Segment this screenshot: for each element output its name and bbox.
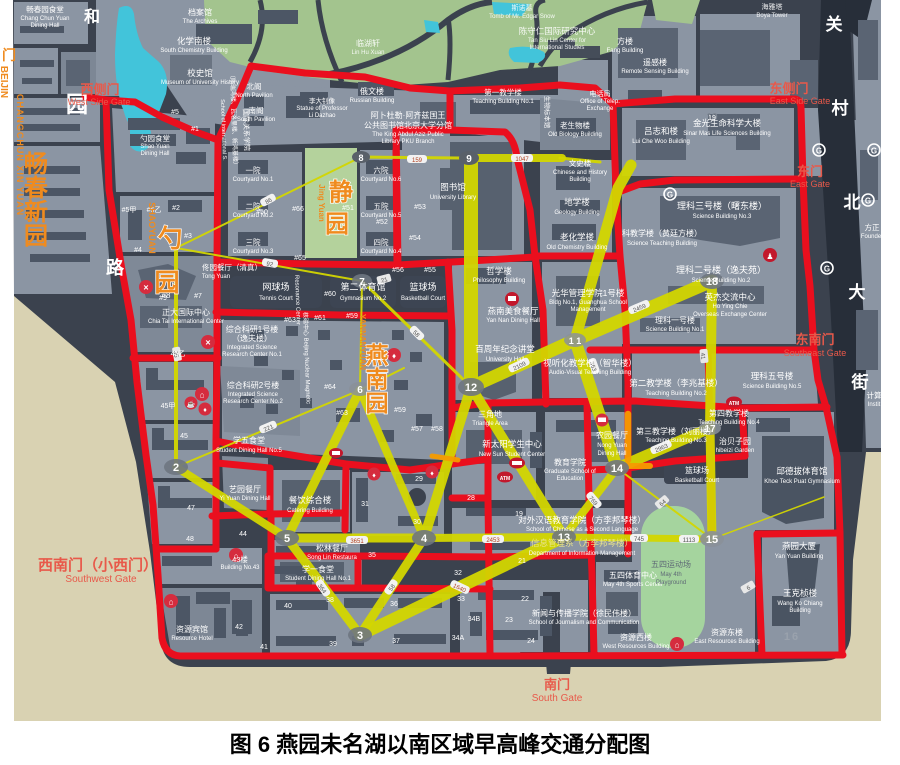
svg-text:综合科研2号楼: 综合科研2号楼 <box>227 380 279 390</box>
svg-text:Old Chemistry Building: Old Chemistry Building <box>546 245 607 251</box>
svg-text:Nong Yuan: Nong Yuan <box>597 443 627 449</box>
svg-text:南门: 南门 <box>544 677 570 692</box>
svg-text:勺: 勺 <box>157 225 182 253</box>
svg-text:教育学院: 教育学院 <box>554 457 586 467</box>
svg-text:44: 44 <box>239 531 247 538</box>
svg-text:16: 16 <box>784 631 800 643</box>
svg-text:Boya Tower: Boya Tower <box>756 13 787 19</box>
svg-text:South Chemistry Building: South Chemistry Building <box>160 48 227 54</box>
svg-text:Jing Yuan: Jing Yuan <box>317 184 326 222</box>
svg-text:hibeizi Garden: hibeizi Garden <box>716 448 755 454</box>
svg-text:Research Center No.1: Research Center No.1 <box>222 352 282 358</box>
svg-text:Dining Hall: Dining Hall <box>597 451 626 457</box>
svg-text:Sinar Mas Life Sciences Buildi: Sinar Mas Life Sciences Building <box>683 131 770 137</box>
svg-text:36: 36 <box>390 601 398 608</box>
svg-text:♦: ♦ <box>372 473 376 480</box>
svg-text:斯诺墓: 斯诺墓 <box>512 3 533 12</box>
svg-text:⌂: ⌂ <box>675 641 680 650</box>
svg-text:School of Chinese as a Second: School of Chinese as a Second Language <box>526 527 639 533</box>
svg-text:北: 北 <box>844 193 861 212</box>
svg-text:Remote Sensing Building: Remote Sensing Building <box>621 69 688 75</box>
svg-text:21: 21 <box>518 558 526 565</box>
svg-text:地学楼: 地学楼 <box>564 197 590 207</box>
svg-text:哲学楼: 哲学楼 <box>486 266 512 276</box>
svg-text:#63: #63 <box>336 410 348 417</box>
svg-text:松林餐厅: 松林餐厅 <box>316 543 348 553</box>
svg-text:海雅塔: 海雅塔 <box>762 2 783 11</box>
svg-text:燕园大厦: 燕园大厦 <box>782 541 817 551</box>
svg-text:West Resources Building: West Resources Building <box>603 644 670 650</box>
svg-text:23: 23 <box>505 617 513 624</box>
svg-text:王克桢楼: 王克桢楼 <box>783 588 818 598</box>
svg-text:农园餐厅: 农园餐厅 <box>596 430 628 440</box>
svg-text:Library PKU Branch: Library PKU Branch <box>381 139 434 145</box>
svg-text:园: 园 <box>154 269 179 297</box>
svg-text:45乙: 45乙 <box>171 350 186 358</box>
svg-text:第二教学楼（李兆基楼）: 第二教学楼（李兆基楼） <box>629 378 723 388</box>
svg-text:电话局: 电话局 <box>590 89 611 98</box>
svg-text:#56: #56 <box>392 267 404 274</box>
svg-text:ATM: ATM <box>500 476 510 482</box>
svg-text:24: 24 <box>527 638 535 645</box>
svg-text:理科五号楼: 理科五号楼 <box>751 371 794 381</box>
svg-text:园: 园 <box>24 223 48 250</box>
svg-text:#66: #66 <box>292 206 304 213</box>
svg-text:篮球场: 篮球场 <box>409 281 436 292</box>
svg-text:#59: #59 <box>394 407 406 414</box>
svg-text:英杰交流中心: 英杰交流中心 <box>704 292 756 302</box>
svg-text:The Archives: The Archives <box>183 19 218 25</box>
svg-text:37: 37 <box>392 638 400 645</box>
svg-text:Yan Nan Dining Hall: Yan Nan Dining Hall <box>486 318 540 324</box>
svg-text:#55: #55 <box>424 267 436 274</box>
svg-text:#61: #61 <box>314 315 326 322</box>
svg-text:陈守仁国际研究中心: 陈守仁国际研究中心 <box>519 26 596 36</box>
svg-text:159: 159 <box>412 158 423 164</box>
svg-text:G: G <box>865 197 871 206</box>
svg-text:5: 5 <box>284 533 290 545</box>
svg-text:19: 19 <box>515 511 523 518</box>
svg-text:New Sun Student Center: New Sun Student Center <box>479 452 545 458</box>
svg-text:May 4th Sports Center: May 4th Sports Center <box>603 582 663 588</box>
svg-text:东门: 东门 <box>797 164 823 179</box>
svg-text:老生物楼: 老生物楼 <box>560 120 590 130</box>
svg-text:南阁: 南阁 <box>249 105 264 115</box>
svg-text:#1: #1 <box>191 126 199 133</box>
svg-text:阿卜杜勒·阿齐兹国王: 阿卜杜勒·阿齐兹国王 <box>371 110 446 120</box>
svg-text:Museum of University History: Museum of University History <box>161 80 239 86</box>
svg-text:Teaching Building No.4: Teaching Building No.4 <box>698 420 760 426</box>
svg-text:科教学楼（黄廷方楼）: 科教学楼（黄廷方楼） <box>622 228 702 238</box>
svg-text:48: 48 <box>186 536 194 543</box>
svg-text:Basketball Court: Basketball Court <box>675 478 719 484</box>
svg-text:BEIJIN: BEIJIN <box>0 66 9 98</box>
svg-text:Tomb of Mr. Edgar Snow: Tomb of Mr. Edgar Snow <box>489 14 555 20</box>
svg-text:李大钊像: 李大钊像 <box>309 96 336 105</box>
svg-text:1113: 1113 <box>683 538 696 544</box>
svg-text:#5甲: #5甲 <box>122 206 137 214</box>
svg-text:街: 街 <box>851 372 869 392</box>
svg-text:东南门: 东南门 <box>795 332 834 347</box>
svg-text:Graduate School of: Graduate School of <box>544 469 596 475</box>
svg-text:East Resources Building: East Resources Building <box>694 639 759 645</box>
svg-text:22: 22 <box>521 596 529 603</box>
svg-text:⌂: ⌂ <box>200 391 205 400</box>
svg-text:餐饮综合楼: 餐饮综合楼 <box>289 495 332 505</box>
svg-text:Southeast Gate: Southeast Gate <box>784 348 847 358</box>
svg-text:29: 29 <box>415 476 423 483</box>
svg-text:Chia Tai International Center: Chia Tai International Center <box>148 319 224 325</box>
svg-text:正大国际中心: 正大国际中心 <box>162 307 210 317</box>
svg-text:生物标本馆: 生物标本馆 <box>543 96 552 129</box>
svg-text:综合科研1号楼: 综合科研1号楼 <box>226 324 278 334</box>
svg-text:University Library: University Library <box>430 195 476 201</box>
svg-text:Student Dining Hall No.1: Student Dining Hall No.1 <box>285 576 351 582</box>
svg-text:新闻与传播学院（徐民伟楼）: 新闻与传播学院（徐民伟楼） <box>532 608 636 618</box>
svg-text:方正: 方正 <box>865 222 880 232</box>
svg-text:Instit: Instit <box>868 402 881 408</box>
svg-text:ATM: ATM <box>729 401 739 407</box>
svg-text:28: 28 <box>467 495 475 502</box>
svg-text:Gymnasium No.2: Gymnasium No.2 <box>340 296 387 302</box>
svg-text:#54: #54 <box>409 235 421 242</box>
svg-text:艺园餐厅: 艺园餐厅 <box>229 485 261 494</box>
svg-text:畅春园食堂: 畅春园食堂 <box>26 4 64 14</box>
svg-text:金光生命科学大楼: 金光生命科学大楼 <box>693 118 762 128</box>
svg-text:勺园食堂: 勺园食堂 <box>140 133 170 143</box>
svg-text:Teaching Building No.1: Teaching Building No.1 <box>472 99 534 105</box>
svg-text:#50: #50 <box>256 209 268 216</box>
svg-text:G: G <box>816 147 822 156</box>
svg-text:Li Dazhao: Li Dazhao <box>308 113 336 119</box>
svg-text:Catering Building: Catering Building <box>287 508 333 514</box>
svg-text:CHANGCHUN XIN YUAN: CHANGCHUN XIN YUAN <box>15 94 25 216</box>
svg-text:#52: #52 <box>376 219 388 226</box>
svg-text:Courtyard No.6: Courtyard No.6 <box>361 177 402 183</box>
svg-text:1 1: 1 1 <box>569 336 582 346</box>
svg-text:Teaching Building No.3: Teaching Building No.3 <box>645 438 707 444</box>
svg-text:Fang Building: Fang Building <box>607 48 644 54</box>
svg-text:4: 4 <box>421 533 428 545</box>
svg-text:745: 745 <box>634 537 645 543</box>
svg-text:39: 39 <box>329 641 337 648</box>
svg-text:燕南美食餐厅: 燕南美食餐厅 <box>487 306 539 316</box>
svg-text:Audio-Visual Teaching Building: Audio-Visual Teaching Building <box>549 370 631 376</box>
svg-text:#7: #7 <box>194 293 202 300</box>
svg-text:Building No.43: Building No.43 <box>220 565 260 571</box>
svg-text:Courtyard No.4: Courtyard No.4 <box>361 249 402 255</box>
svg-text:三院: 三院 <box>246 237 261 247</box>
svg-text:Dining Hall: Dining Hall <box>140 151 169 157</box>
svg-text:#58: #58 <box>431 426 443 433</box>
svg-text:化学南楼: 化学南楼 <box>177 36 212 46</box>
svg-text:关: 关 <box>826 14 843 34</box>
svg-text:Management: Management <box>570 307 605 313</box>
svg-text:×: × <box>205 338 210 348</box>
svg-text:Resource Hotel: Resource Hotel <box>171 636 212 642</box>
svg-text:大: 大 <box>849 282 866 302</box>
svg-text:计算: 计算 <box>867 390 882 400</box>
svg-text:Education: Education <box>557 476 584 482</box>
svg-text:YANNANYUAN: YANNANYUAN <box>358 314 367 370</box>
svg-text:#65: #65 <box>294 255 306 262</box>
svg-text:Khoe Teck Puat Gymnasium: Khoe Teck Puat Gymnasium <box>764 479 840 485</box>
svg-text:方楼: 方楼 <box>617 36 633 46</box>
svg-text:Shao Yuan: Shao Yuan <box>140 144 169 150</box>
svg-text:Lin Hu Xuan: Lin Hu Xuan <box>351 50 384 56</box>
svg-text:#5: #5 <box>171 109 179 116</box>
svg-text:8: 8 <box>358 153 363 163</box>
svg-text:北阁: 北阁 <box>247 81 262 91</box>
svg-text:第四教学楼: 第四教学楼 <box>709 408 749 418</box>
svg-text:♟: ♟ <box>766 252 773 261</box>
svg-text:University Hall: University Hall <box>486 357 524 363</box>
svg-text:邱德拔体育馆: 邱德拔体育馆 <box>776 466 827 476</box>
svg-text:45甲: 45甲 <box>161 402 176 410</box>
svg-text:#63: #63 <box>284 317 296 324</box>
svg-text:和: 和 <box>84 7 100 26</box>
svg-text:（逸夫楼）: （逸夫楼） <box>232 333 272 343</box>
svg-text:North Pavilion: North Pavilion <box>235 93 272 99</box>
svg-text:Statue of Professor: Statue of Professor <box>296 106 347 112</box>
svg-text:1047: 1047 <box>515 157 529 163</box>
svg-text:⌂: ⌂ <box>169 598 174 607</box>
svg-text:♦: ♦ <box>203 407 207 414</box>
svg-text:新太阳学生中心: 新太阳学生中心 <box>482 439 542 449</box>
svg-text:Department of Information Mana: Department of Information Management <box>529 551 636 557</box>
svg-text:俄文楼: 俄文楼 <box>360 86 384 96</box>
svg-text:静: 静 <box>329 179 353 206</box>
svg-text:#57: #57 <box>411 426 423 433</box>
svg-text:☕: ☕ <box>187 400 196 409</box>
svg-text:#64: #64 <box>324 384 336 391</box>
svg-text:Courtyard No.3: Courtyard No.3 <box>233 249 274 255</box>
svg-text:Russian Building: Russian Building <box>350 98 395 104</box>
svg-text:Building: Building <box>789 608 810 614</box>
svg-text:#53: #53 <box>414 204 426 211</box>
svg-text:Science Building No.1: Science Building No.1 <box>646 327 705 333</box>
svg-text:♦: ♦ <box>392 352 396 361</box>
svg-text:May 4th: May 4th <box>660 572 681 578</box>
svg-text:40: 40 <box>284 603 292 610</box>
svg-text:6: 6 <box>357 385 363 396</box>
svg-text:The King Abdul Aziz Public: The King Abdul Aziz Public <box>372 132 443 138</box>
svg-text:第二体育馆: 第二体育馆 <box>340 281 385 292</box>
svg-text:治贝子园: 治贝子园 <box>719 436 751 446</box>
svg-text:视听化教学楼（智华楼）: 视听化教学楼（智华楼） <box>543 358 637 368</box>
svg-text:43楼: 43楼 <box>232 554 248 564</box>
svg-text:G: G <box>824 265 830 274</box>
svg-text:Overseas Exchange Center: Overseas Exchange Center <box>693 312 767 318</box>
svg-text:Student Dining Hall No.5: Student Dining Hall No.5 <box>216 448 282 454</box>
svg-text:Integrated Science: Integrated Science <box>227 345 278 351</box>
svg-text:Dining Hall: Dining Hall <box>30 23 59 29</box>
svg-text:Science Building No.3: Science Building No.3 <box>693 214 752 220</box>
svg-text:第三教学楼（刘丽楼）: 第三教学楼（刘丽楼） <box>636 426 716 436</box>
svg-text:信息管理系（方李邦琴楼）: 信息管理系（方李邦琴楼） <box>531 538 633 548</box>
svg-text:41: 41 <box>260 644 268 651</box>
svg-text:SHAOYUAN: SHAOYUAN <box>147 202 157 254</box>
svg-text:Chinese and History: Chinese and History <box>553 170 607 176</box>
svg-text:Geology Building: Geology Building <box>554 210 599 216</box>
svg-text:Ho Ying Chie: Ho Ying Chie <box>712 304 748 310</box>
svg-text:春: 春 <box>24 175 48 202</box>
svg-text:Teaching Building No.2: Teaching Building No.2 <box>645 391 707 397</box>
svg-text:School of Journalism and Commu: School of Journalism and Communication <box>529 620 640 626</box>
svg-text:Science Teaching Building: Science Teaching Building <box>627 241 697 247</box>
svg-text:#3: #3 <box>184 233 192 240</box>
svg-text:East Side Gate: East Side Gate <box>770 96 831 106</box>
svg-text:Lui Che Woo Building: Lui Che Woo Building <box>632 139 690 145</box>
svg-text:31: 31 <box>361 501 369 508</box>
svg-text:West Side Gate: West Side Gate <box>68 97 131 107</box>
svg-text:#4: #4 <box>134 247 142 254</box>
svg-text:第一教学楼: 第一教学楼 <box>484 87 522 97</box>
svg-text:百周年纪念讲堂: 百周年纪念讲堂 <box>475 344 535 354</box>
svg-text:西南门（小西门）: 西南门（小西门） <box>38 556 158 574</box>
svg-text:Building: Building <box>569 177 590 183</box>
svg-text:Tennis Court: Tennis Court <box>259 296 293 302</box>
svg-text:Southwest Gate: Southwest Gate <box>65 574 137 585</box>
svg-text:路: 路 <box>106 257 125 278</box>
svg-text:学五食堂: 学五食堂 <box>233 435 265 445</box>
svg-text:图 6 燕园未名湖以南区域早高峰交通分配图: 图 6 燕园未名湖以南区域早高峰交通分配图 <box>230 732 650 757</box>
svg-text:47: 47 <box>187 505 195 512</box>
svg-text:Song Lin Restaura: Song Lin Restaura <box>307 555 357 561</box>
svg-text:Tong Yuan: Tong Yuan <box>202 274 230 280</box>
svg-text:新: 新 <box>24 198 48 226</box>
svg-text:Playground: Playground <box>656 580 686 586</box>
svg-text:Office of Telep.: Office of Telep. <box>580 99 620 105</box>
svg-text:International Studies: International Studies <box>530 45 585 51</box>
svg-text:园: 园 <box>366 390 389 416</box>
svg-text:45: 45 <box>180 433 188 440</box>
svg-text:档案馆: 档案馆 <box>188 7 212 17</box>
svg-text:30: 30 <box>413 519 421 526</box>
svg-text:Basketball Court: Basketball Court <box>401 296 445 302</box>
svg-text:Courtyard No.1: Courtyard No.1 <box>233 177 274 183</box>
svg-text:吕志和楼: 吕志和楼 <box>644 126 679 136</box>
svg-text:Bldg No.1, Guanghua School: Bldg No.1, Guanghua School <box>549 300 627 306</box>
svg-text:Research Center No.2: Research Center No.2 <box>223 399 283 405</box>
svg-text:Yan Yuan Building: Yan Yuan Building <box>775 554 824 560</box>
svg-text:15: 15 <box>706 534 718 546</box>
svg-text:校史馆: 校史馆 <box>187 68 213 78</box>
svg-text:Founder: Founder <box>861 234 883 240</box>
svg-text:Exchange: Exchange <box>587 106 614 112</box>
svg-text:19: 19 <box>708 115 716 122</box>
svg-text:Science Building No.5: Science Building No.5 <box>743 384 802 390</box>
svg-text:3: 3 <box>357 630 363 642</box>
svg-text:Old Biology Building: Old Biology Building <box>548 132 602 138</box>
svg-text:对外汉语教育学院（方李邦琴楼）: 对外汉语教育学院（方李邦琴楼） <box>518 515 646 525</box>
svg-text:14: 14 <box>611 463 624 475</box>
svg-text:理科三号楼（曙东楼）: 理科三号楼（曙东楼） <box>677 200 767 211</box>
svg-text:东侧门: 东侧门 <box>769 81 808 96</box>
svg-text:三角地: 三角地 <box>478 409 502 419</box>
svg-text:资源东楼: 资源东楼 <box>711 627 743 637</box>
svg-text:理科二号楼（逸夫苑）: 理科二号楼（逸夫苑） <box>676 264 766 275</box>
svg-text:3651: 3651 <box>350 539 364 545</box>
svg-text:篮球场: 篮球场 <box>685 465 709 475</box>
svg-text:#59: #59 <box>346 313 358 320</box>
svg-text:五四运动场: 五四运动场 <box>651 559 691 569</box>
svg-text:佟园餐厅（清真）: 佟园餐厅（清真） <box>202 262 262 272</box>
svg-text:园: 园 <box>325 211 349 238</box>
svg-text:G: G <box>667 191 673 200</box>
svg-text:9: 9 <box>466 154 472 165</box>
svg-text:33: 33 <box>457 596 465 603</box>
svg-text:×: × <box>143 283 148 293</box>
svg-text:临湖轩: 临湖轩 <box>356 38 380 48</box>
svg-text:门: 门 <box>2 47 16 63</box>
svg-text:32: 32 <box>454 570 462 577</box>
svg-text:Yi Yuan Dining Hall: Yi Yuan Dining Hall <box>219 496 270 502</box>
svg-text:G: G <box>871 147 877 156</box>
svg-text:East Gate: East Gate <box>790 179 830 189</box>
svg-text:42: 42 <box>235 624 243 631</box>
svg-text:学一食堂: 学一食堂 <box>302 564 334 574</box>
svg-text:南: 南 <box>366 366 389 392</box>
svg-text:34A: 34A <box>452 635 465 642</box>
svg-text:35: 35 <box>368 552 376 559</box>
svg-text:一院: 一院 <box>246 165 261 175</box>
svg-text:Chang Chun Yuan: Chang Chun Yuan <box>21 16 70 22</box>
svg-text:#60: #60 <box>324 291 336 298</box>
svg-text:光华管理学院1号楼: 光华管理学院1号楼 <box>552 288 625 298</box>
svg-text:遥感楼: 遥感楼 <box>643 57 667 67</box>
svg-text:12: 12 <box>465 382 477 394</box>
svg-text:文史楼: 文史楼 <box>569 158 592 168</box>
svg-text:图书馆: 图书馆 <box>440 182 466 192</box>
svg-text:Integrated Science: Integrated Science <box>228 392 279 398</box>
svg-text:2453: 2453 <box>486 538 500 544</box>
svg-text:Triangle Area: Triangle Area <box>472 421 508 427</box>
svg-text:四院: 四院 <box>374 237 389 247</box>
svg-text:公共图书馆北京大学分馆: 公共图书馆北京大学分馆 <box>364 120 452 130</box>
svg-text:网球场: 网球场 <box>262 281 289 292</box>
svg-text:South Gate: South Gate <box>532 693 583 704</box>
svg-text:老化学楼: 老化学楼 <box>560 232 595 242</box>
svg-text:理科一号楼: 理科一号楼 <box>655 315 695 325</box>
svg-text:村: 村 <box>832 98 849 118</box>
svg-text:畅: 畅 <box>24 151 48 178</box>
svg-text:34B: 34B <box>468 616 481 623</box>
svg-text:Philosophy Building: Philosophy Building <box>473 278 525 284</box>
svg-text:#2: #2 <box>172 205 180 212</box>
svg-text:38: 38 <box>326 597 334 604</box>
svg-text:Science Building No.2: Science Building No.2 <box>692 278 751 284</box>
svg-text:五院: 五院 <box>374 201 389 211</box>
svg-text:41: 41 <box>699 353 706 361</box>
svg-text:2: 2 <box>173 462 179 474</box>
svg-text:Tan Siu Lin Center for: Tan Siu Lin Center for <box>528 38 586 44</box>
svg-text:资源宾馆: 资源宾馆 <box>176 624 208 634</box>
svg-text:西侧门: 西侧门 <box>80 82 119 97</box>
svg-text:六院: 六院 <box>374 165 389 175</box>
svg-text:♦: ♦ <box>430 471 434 478</box>
svg-text:Wang Ko Chiang: Wang Ko Chiang <box>777 601 822 607</box>
svg-text:资源西楼: 资源西楼 <box>620 632 652 642</box>
svg-text:燕: 燕 <box>366 342 389 368</box>
svg-text:五四体育中心: 五四体育中心 <box>609 570 657 580</box>
